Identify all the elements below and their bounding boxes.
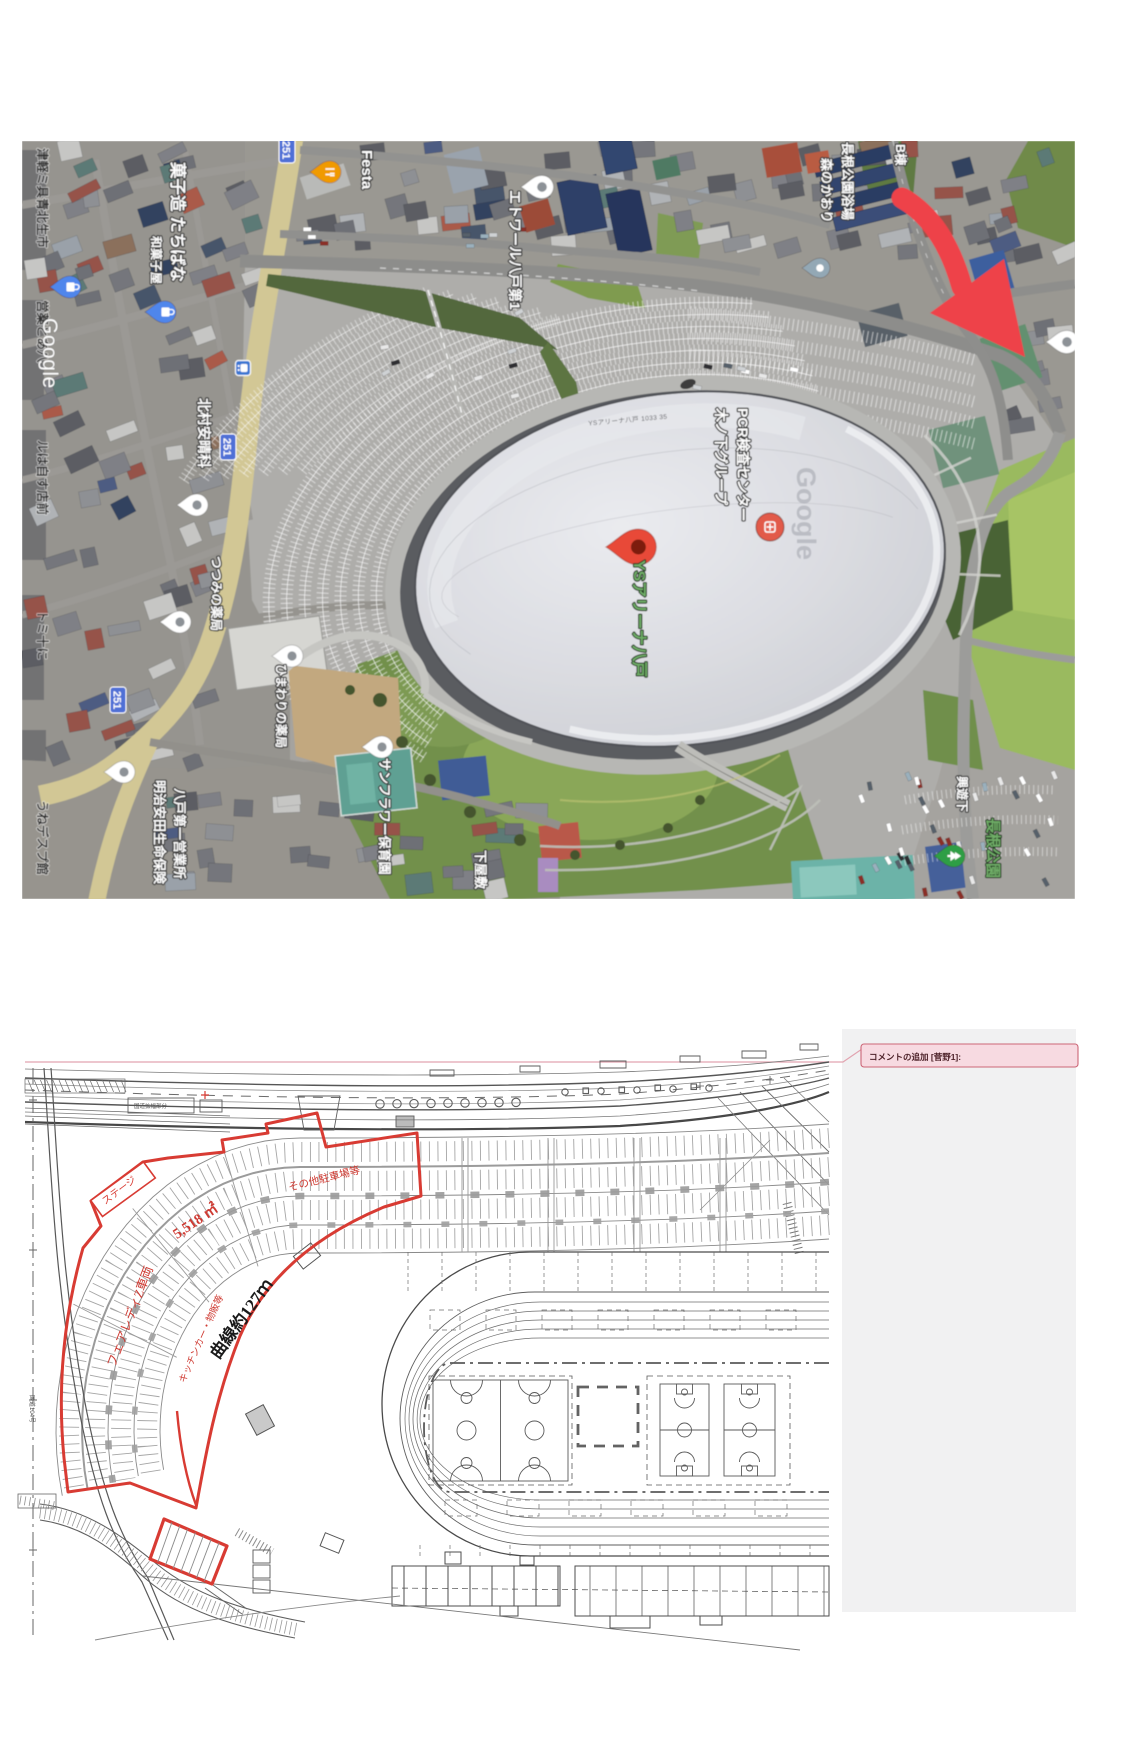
svg-text:Google: Google (791, 467, 821, 560)
svg-text:トミ十に: トミ十に (35, 610, 50, 660)
svg-text:サンフラワー保育園: サンフラワー保育園 (377, 758, 392, 875)
svg-text:長根公園浴場: 長根公園浴場 (840, 142, 855, 220)
svg-text:北村安晴科: 北村安晴科 (196, 398, 212, 468)
svg-text:251: 251 (221, 438, 233, 456)
svg-text:津軽ミ具青北生市: 津軽ミ具青北生市 (35, 148, 50, 249)
svg-text:菓子造 たちばな: 菓子造 たちばな (168, 161, 187, 282)
svg-text:251: 251 (280, 141, 292, 159)
svg-text:国道104号: 国道104号 (28, 1395, 36, 1423)
svg-text:YSアリーナ八戸: YSアリーナ八戸 (630, 560, 648, 677)
svg-text:森のかおり: 森のかおり (819, 158, 834, 223)
svg-text:長根公園: 長根公園 (984, 818, 1002, 878)
svg-text:エトワール八戸第1: エトワール八戸第1 (507, 190, 523, 310)
svg-text:ルは自す店前: ルは自す店前 (35, 440, 50, 516)
svg-text:Festa: Festa (358, 150, 375, 190)
svg-text:下屋敷: 下屋敷 (473, 850, 488, 890)
svg-text:PCR検査センター: PCR検査センター (735, 408, 751, 522)
svg-text:国道拡幅部分: 国道拡幅部分 (134, 1102, 168, 1110)
svg-text:Google: Google (38, 318, 61, 389)
svg-text:コメントの追加 [菅野1]:: コメントの追加 [菅野1]: (869, 1052, 961, 1062)
svg-text:八戸第一営業所: 八戸第一営業所 (172, 787, 187, 879)
svg-text:251: 251 (111, 691, 123, 709)
svg-text:明治安田生命保険: 明治安田生命保険 (152, 780, 167, 885)
svg-text:興遊下: 興遊下 (955, 776, 970, 812)
svg-text:B棟: B棟 (893, 144, 908, 166)
svg-text:ひまわりの薬局: ひまわりの薬局 (274, 664, 289, 748)
svg-text:和菓子屋: 和菓子屋 (149, 235, 164, 284)
svg-text:木ノ下グループ: 木ノ下グループ (713, 407, 729, 506)
svg-text:フェアレディZ車両: フェアレディZ車両 (104, 1264, 156, 1369)
svg-text:つつみの薬局: つつみの薬局 (209, 556, 224, 631)
svg-text:うねデスプ館: うねデスプ館 (35, 800, 50, 875)
